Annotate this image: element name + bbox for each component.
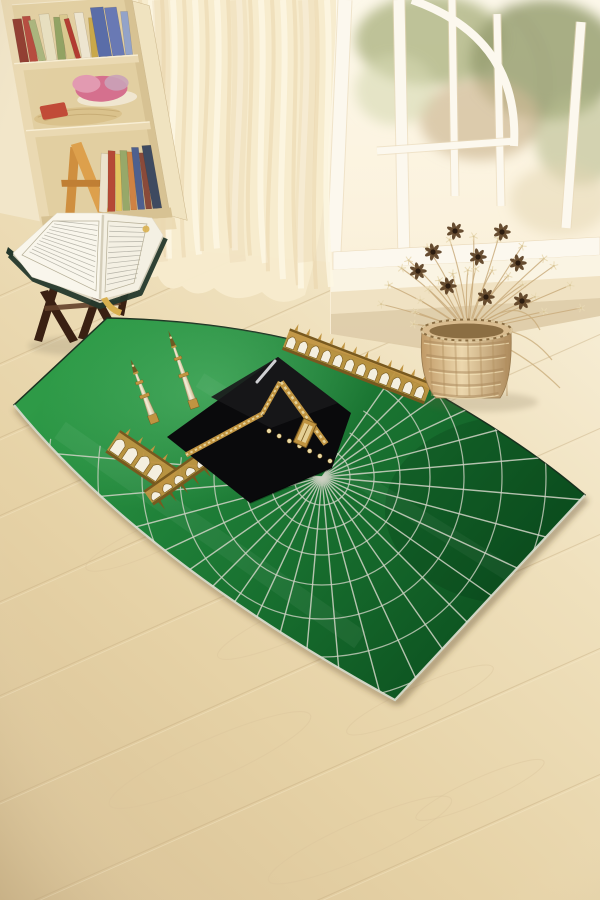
product-photo (0, 0, 600, 900)
scene-photo (0, 0, 600, 900)
vignette (0, 0, 600, 900)
